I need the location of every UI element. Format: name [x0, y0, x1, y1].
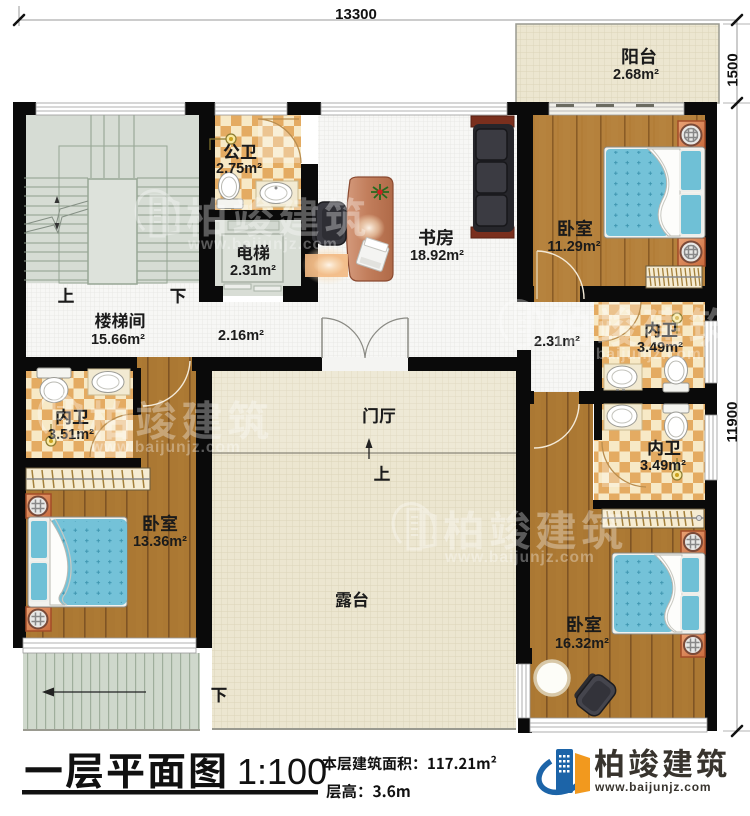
svg-text:15.66m²: 15.66m²: [91, 332, 145, 348]
svg-text:16.32m²: 16.32m²: [555, 636, 609, 652]
svg-text:1500: 1500: [725, 53, 742, 86]
svg-text:2.16m²: 2.16m²: [218, 328, 264, 344]
svg-text:2.31m²: 2.31m²: [230, 263, 276, 279]
svg-text:2.68m²: 2.68m²: [613, 67, 659, 83]
svg-text:18.92m²: 18.92m²: [410, 248, 464, 264]
svg-text:www.baijunjz.com: www.baijunjz.com: [594, 780, 711, 794]
svg-text:11900: 11900: [724, 402, 741, 443]
svg-text:www.baijunjz.com: www.baijunjz.com: [187, 236, 338, 253]
svg-text:1:100: 1:100: [237, 751, 327, 792]
svg-text:13300: 13300: [335, 6, 377, 23]
svg-text:11.29m²: 11.29m²: [547, 239, 600, 255]
svg-text:2.75m²: 2.75m²: [216, 161, 262, 177]
svg-text:3.49m²: 3.49m²: [640, 458, 686, 474]
svg-text:13.36m²: 13.36m²: [133, 534, 187, 550]
